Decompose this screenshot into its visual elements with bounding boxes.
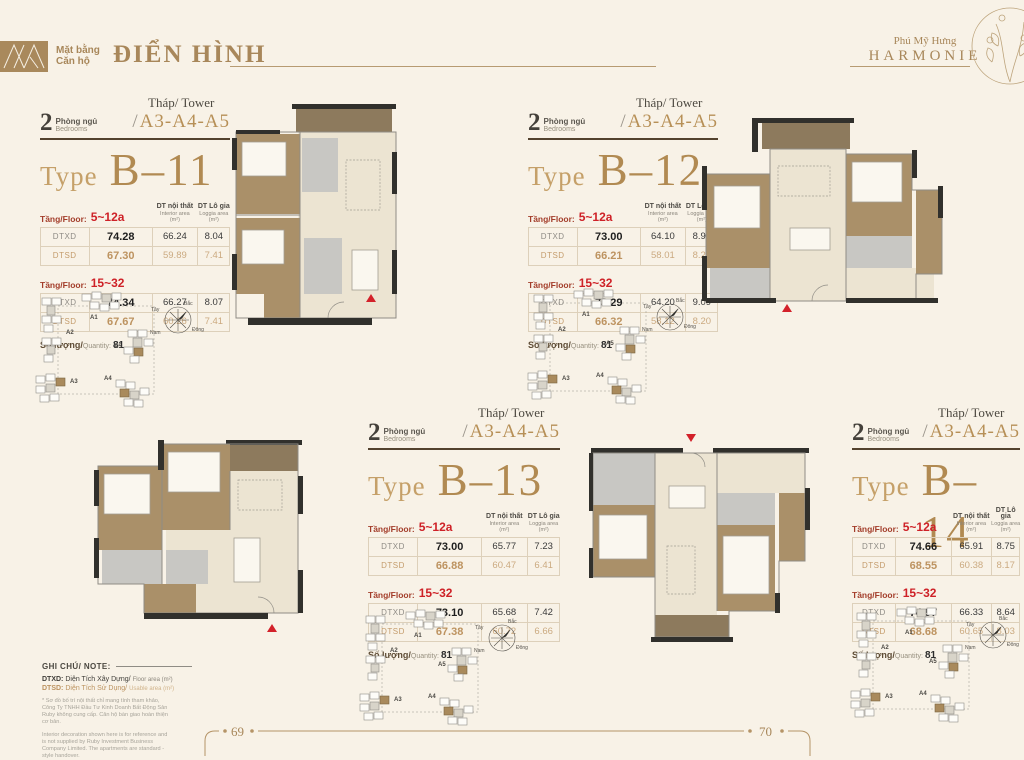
- bedroom-label-vn: Phòng ngủ: [56, 117, 98, 126]
- unit-header: 2 Phòng ngủ Bedrooms Tháp/ Tower /A3-A4-…: [852, 405, 1020, 450]
- tower-slash: /: [132, 111, 138, 132]
- area-value: 65.91: [951, 537, 992, 557]
- area-value: 68.55: [895, 556, 951, 576]
- area-value: 7.23: [527, 537, 561, 557]
- tower-value: A3-A4-A5: [930, 421, 1020, 442]
- unit-type: B–12: [598, 144, 704, 196]
- building-label-a3: A3: [394, 697, 402, 703]
- row-label-dtsd: DTSD: [528, 246, 578, 266]
- floor-range: 15~32: [419, 586, 453, 600]
- row-label-dtxd: DTXD: [40, 227, 90, 247]
- tower-label: Tháp/ Tower: [620, 95, 718, 111]
- area-value: 73.00: [417, 537, 481, 557]
- area-value: 60.47: [481, 556, 528, 576]
- bedroom-label-vn: Phòng ngủ: [544, 117, 586, 126]
- note-dtsd: DTSD: Diện Tích Sử Dụng/ Usable area (m²…: [42, 685, 192, 692]
- col-header-interior: DT nội thất Interior area (m²): [152, 198, 199, 226]
- col-header-interior: DT nội thất Interior area (m²): [640, 198, 687, 226]
- floor-range: 15~32: [903, 586, 937, 600]
- bedroom-label-en: Bedrooms: [384, 436, 426, 443]
- site-key-map: A2 A1 A5 A3: [28, 288, 213, 413]
- building-label-a1: A1: [582, 312, 590, 318]
- site-key-map: A2 A1 A5 A3: [843, 603, 1024, 728]
- tower-group: Tháp/ Tower /A3-A4-A5: [462, 405, 560, 443]
- area-value: 60.38: [951, 556, 992, 576]
- row-label-dtxd: DTXD: [852, 537, 897, 557]
- area-value: 65.77: [481, 537, 528, 557]
- type-label: Type: [40, 161, 98, 192]
- area-value: 73.00: [577, 227, 641, 247]
- compass-west: Tây: [966, 622, 975, 628]
- building-cluster-a5: [124, 330, 153, 363]
- floor-range-header: Tầng/Floor: 5~12a: [368, 508, 481, 537]
- tower-label: Tháp/ Tower: [922, 405, 1020, 421]
- building-cluster-a1: [897, 607, 936, 626]
- area-value: 66.88: [417, 556, 481, 576]
- building-cluster-a5: [448, 648, 477, 681]
- page-title: ĐIỂN HÌNH: [113, 41, 266, 69]
- col-header-interior: DT nội thất Interior area (m²): [481, 508, 528, 536]
- tower-slash: /: [462, 421, 468, 442]
- note-dtxd: DTXD: Diện Tích Xây Dựng/ Floor area (m²…: [42, 676, 192, 683]
- compass-east: Đông: [1007, 642, 1019, 648]
- floor-range-header: Tầng/Floor: 5~12a: [40, 198, 152, 227]
- building-label-a3: A3: [885, 694, 893, 700]
- row-label-dtxd: DTXD: [528, 227, 578, 247]
- compass-east: Đông: [516, 645, 528, 651]
- compass-north: Bắc: [184, 300, 193, 307]
- compass-south: Nam: [965, 645, 976, 651]
- header-subtitle: Mặt bằng Căn hộ: [56, 45, 100, 67]
- footer-rule: 69 70: [0, 714, 1024, 756]
- notes-heading: GHI CHÚ/ NOTE:: [42, 662, 192, 671]
- building-label-a2: A2: [558, 327, 566, 333]
- area-value: 8.04: [197, 227, 230, 247]
- entrance-arrow-icon: [686, 434, 696, 442]
- floor-range: 5~12a: [419, 520, 453, 534]
- site-map-b12: A2 A1 A5 A3: [520, 285, 705, 415]
- building-label-a1: A1: [90, 315, 98, 321]
- compass-east: Đông: [192, 327, 204, 333]
- compass-west: Tây: [475, 625, 484, 631]
- building-label-a5: A5: [606, 341, 614, 347]
- brand-logo-icon: [0, 41, 48, 72]
- compass-south: Nam: [474, 648, 485, 654]
- tower-group: Tháp/ Tower /A3-A4-A5: [922, 405, 1020, 443]
- bedroom-count: 2: [368, 423, 381, 443]
- entrance-arrow-icon: [267, 624, 277, 632]
- tower-slash: /: [922, 421, 928, 442]
- compass-north: Bắc: [508, 618, 517, 625]
- row-label-dtsd: DTSD: [368, 556, 419, 576]
- area-value: 58.01: [640, 246, 687, 266]
- building-label-a4: A4: [428, 694, 436, 700]
- compass-icon: Tây Bắc Đông Nam: [150, 300, 204, 336]
- compass-north: Bắc: [676, 297, 685, 304]
- floor-plan-b14: [583, 428, 849, 650]
- floor-range: 5~12a: [579, 210, 613, 224]
- floor-plan-b13: [60, 420, 360, 642]
- unit-type-row: Type B–11: [40, 144, 230, 190]
- building-cluster-a1: [82, 292, 121, 311]
- compass-icon: Tây Bắc Đông Nam: [642, 297, 696, 333]
- building-label-a5: A5: [438, 662, 446, 668]
- floor-range-header: Tầng/Floor: 15~32: [852, 578, 1020, 603]
- building-cluster-a4: [608, 377, 641, 404]
- type-label: Type: [368, 471, 426, 502]
- unit-type-row: Type B–14: [852, 454, 1020, 500]
- compass-icon: Tây Bắc Đông Nam: [965, 615, 1019, 651]
- bedroom-count-group: 2 Phòng ngủ Bedrooms: [368, 423, 425, 443]
- row-label-dtsd: DTSD: [852, 556, 897, 576]
- compass-west: Tây: [643, 304, 652, 310]
- unit-header: 2 Phòng ngủ Bedrooms Tháp/ Tower /A3-A4-…: [368, 405, 560, 450]
- area-value: 8.75: [991, 537, 1021, 557]
- compass-west: Tây: [151, 307, 160, 313]
- compass-icon: Tây Bắc Đông Nam: [474, 618, 528, 654]
- compass-north: Bắc: [999, 615, 1008, 622]
- floor-range-header: Tầng/Floor: 15~32: [368, 578, 560, 603]
- area-value: 74.28: [89, 227, 153, 247]
- unit-header: 2 Phòng ngủ Bedrooms Tháp/ Tower /A3-A4-…: [528, 95, 718, 140]
- bedroom-count-group: 2 Phòng ngủ Bedrooms: [852, 423, 909, 443]
- building-label-a5: A5: [929, 659, 937, 665]
- building-cluster-a1: [574, 289, 613, 308]
- tower-value: A3-A4-A5: [140, 111, 230, 132]
- bedroom-label-vn: Phòng ngủ: [384, 427, 426, 436]
- bedroom-label-en: Bedrooms: [544, 126, 586, 133]
- unit-type-row: Type B–13: [368, 454, 560, 500]
- building-label-a3: A3: [562, 376, 570, 382]
- tower-label: Tháp/ Tower: [132, 95, 230, 111]
- building-cluster-a1: [406, 610, 445, 629]
- building-label-a2: A2: [881, 645, 889, 651]
- floor-range: 5~12a: [91, 210, 125, 224]
- unit-header: 2 Phòng ngủ Bedrooms Tháp/ Tower /A3-A4-…: [40, 95, 230, 140]
- building-label-a5: A5: [114, 344, 122, 350]
- building-cluster-a5: [939, 645, 968, 678]
- compass-south: Nam: [642, 327, 653, 333]
- header-rule-left: [230, 66, 656, 67]
- floor-plan-b11: [228, 104, 406, 338]
- building-label-a4: A4: [104, 376, 112, 382]
- bedroom-label-vn: Phòng ngủ: [868, 427, 910, 436]
- site-key-map: A2 A1 A5 A3: [520, 285, 705, 410]
- floor-plan-b12: [694, 110, 968, 316]
- area-value: 67.30: [89, 246, 153, 266]
- building-label-a2: A2: [66, 330, 74, 336]
- col-header-loggia: DT Lô gia Loggia area (m²): [197, 198, 230, 226]
- tower-group: Tháp/ Tower /A3-A4-A5: [132, 95, 230, 133]
- building-cluster-a3: [528, 371, 557, 399]
- col-header-loggia: DT Lô gia Loggia area (m²): [991, 508, 1021, 536]
- building-label-a1: A1: [414, 633, 422, 639]
- type-label: Type: [528, 161, 586, 192]
- building-label-a3: A3: [70, 379, 78, 385]
- building-label-a4: A4: [919, 691, 927, 697]
- floor-range-header: Tầng/Floor: 5~12a: [528, 198, 640, 227]
- bedroom-label-en: Bedrooms: [868, 436, 910, 443]
- building-cluster-a5: [616, 327, 645, 360]
- area-value: 64.10: [640, 227, 687, 247]
- compass-south: Nam: [150, 330, 161, 336]
- floral-emblem-icon: [952, 2, 1024, 92]
- bedroom-count: 2: [852, 423, 865, 443]
- site-map-b11: A2 A1 A5 A3: [28, 288, 213, 418]
- building-cluster-a3: [851, 689, 880, 717]
- area-value: 8.17: [991, 556, 1021, 576]
- col-header-interior: DT nội thất Interior area (m²): [951, 508, 992, 536]
- page-number-left: 69: [231, 724, 244, 739]
- unit-type-row: Type B–12: [528, 144, 718, 190]
- bedroom-count-group: 2 Phòng ngủ Bedrooms: [40, 113, 97, 133]
- tower-slash: /: [620, 111, 626, 132]
- tower-label: Tháp/ Tower: [462, 405, 560, 421]
- entrance-arrow-icon: [782, 304, 792, 312]
- row-label-dtxd: DTXD: [368, 537, 419, 557]
- brochure-page: { "page": { "header": { "logo_line1": "M…: [0, 0, 1024, 756]
- building-cluster-a3: [36, 374, 65, 402]
- bedroom-count: 2: [528, 113, 541, 133]
- area-value: 74.66: [895, 537, 951, 557]
- bedroom-count-group: 2 Phòng ngủ Bedrooms: [528, 113, 585, 133]
- area-value: 59.89: [152, 246, 199, 266]
- building-label-a1: A1: [905, 630, 913, 636]
- floor-range: 5~12a: [903, 520, 937, 534]
- floor-range-header: Tầng/Floor: 5~12a: [852, 508, 951, 537]
- site-key-map: A2 A1 A5 A3: [352, 606, 537, 731]
- type-label: Type: [852, 471, 910, 502]
- unit-type: B–13: [438, 454, 544, 506]
- unit-type: B–11: [110, 144, 214, 196]
- area-value: 7.41: [197, 246, 230, 266]
- compass-east: Đông: [684, 324, 696, 330]
- building-cluster-a4: [116, 380, 149, 407]
- building-label-a2: A2: [390, 648, 398, 654]
- tower-value: A3-A4-A5: [470, 421, 560, 442]
- bedroom-label-en: Bedrooms: [56, 126, 98, 133]
- building-label-a4: A4: [596, 373, 604, 379]
- area-value: 6.41: [527, 556, 561, 576]
- row-label-dtsd: DTSD: [40, 246, 90, 266]
- bedroom-count: 2: [40, 113, 53, 133]
- col-header-loggia: DT Lô gia Loggia area (m²): [527, 508, 561, 536]
- area-value: 66.24: [152, 227, 199, 247]
- area-value: 66.21: [577, 246, 641, 266]
- page-number-right: 70: [759, 724, 772, 739]
